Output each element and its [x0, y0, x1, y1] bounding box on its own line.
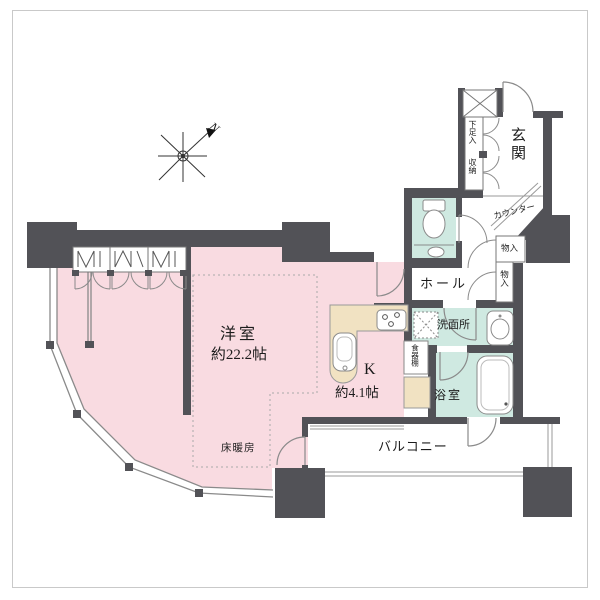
wall-kitchen-top [326, 252, 374, 262]
pillar-balcony-right [523, 467, 572, 517]
room-label-hall: ホール [420, 277, 468, 290]
pillar-balcony-left [275, 468, 325, 518]
floor-plan-drawing [0, 0, 600, 600]
bathtub-icon [477, 356, 513, 414]
dish-cabinet-label: 食器棚 [411, 344, 419, 367]
entrance-door [503, 82, 533, 112]
toilet-bowl-icon [423, 210, 445, 238]
refrigerator-space [404, 377, 430, 408]
wall-washroom-bath-a [428, 345, 437, 353]
hall-closet-doors [468, 240, 496, 300]
room-label-balcony: バルコニー [378, 440, 448, 453]
bath-balcony-door [468, 418, 496, 446]
floor-heating-label: 床暖房 [221, 444, 256, 455]
wall-toilet-right-b [456, 241, 462, 259]
toilet-sink-icon [428, 247, 444, 257]
compass-icon [158, 128, 216, 182]
floor-plan: 洋室 約22.2帖 K 約4.1帖 床暖房 ホール 洗面所 浴室 バルコニー 玄… [0, 0, 600, 600]
wall-balcony-left-a [302, 417, 308, 437]
shoe-cabinet-label: 下足入 [468, 120, 476, 144]
kitchen-stove-icon [377, 310, 406, 330]
room-size-western: 約22.2帖 [191, 348, 287, 363]
room-label-bathroom: 浴室 [434, 389, 462, 401]
wall-washroom-bath-b [467, 345, 515, 353]
pillar-top-mid [282, 222, 330, 262]
toilet-tank [423, 200, 445, 211]
room-label-washroom: 洗面所 [437, 320, 470, 331]
wall-hall-washroom-a [412, 300, 443, 308]
shaft-hatch-icon [463, 90, 497, 117]
wall-balcony-top-b [500, 417, 560, 424]
wall-top-cap [533, 111, 563, 118]
closet-lower-label: 物入 [500, 270, 509, 287]
wall-balcony-top-a [308, 417, 467, 424]
room-label-western: 洋室 [206, 327, 272, 343]
kitchen-sink-icon [333, 333, 356, 371]
room-size-kitchen: 約4.1帖 [335, 386, 379, 400]
wall-toilet-right-a [456, 197, 462, 217]
wall-top [50, 230, 282, 247]
washing-machine-icon [414, 312, 438, 338]
closet-upper-label: 物入 [501, 244, 518, 253]
toilet-door [459, 215, 487, 243]
shoe-cabinet-divider [479, 151, 487, 158]
room-label-entrance: 玄関 [509, 127, 524, 163]
wall-toilet-bottom [404, 258, 462, 268]
room-label-kitchen: K [364, 362, 376, 378]
storage-label: 収納 [468, 158, 476, 174]
wall-right-upper [543, 118, 552, 212]
wall-right-lower [513, 263, 523, 420]
